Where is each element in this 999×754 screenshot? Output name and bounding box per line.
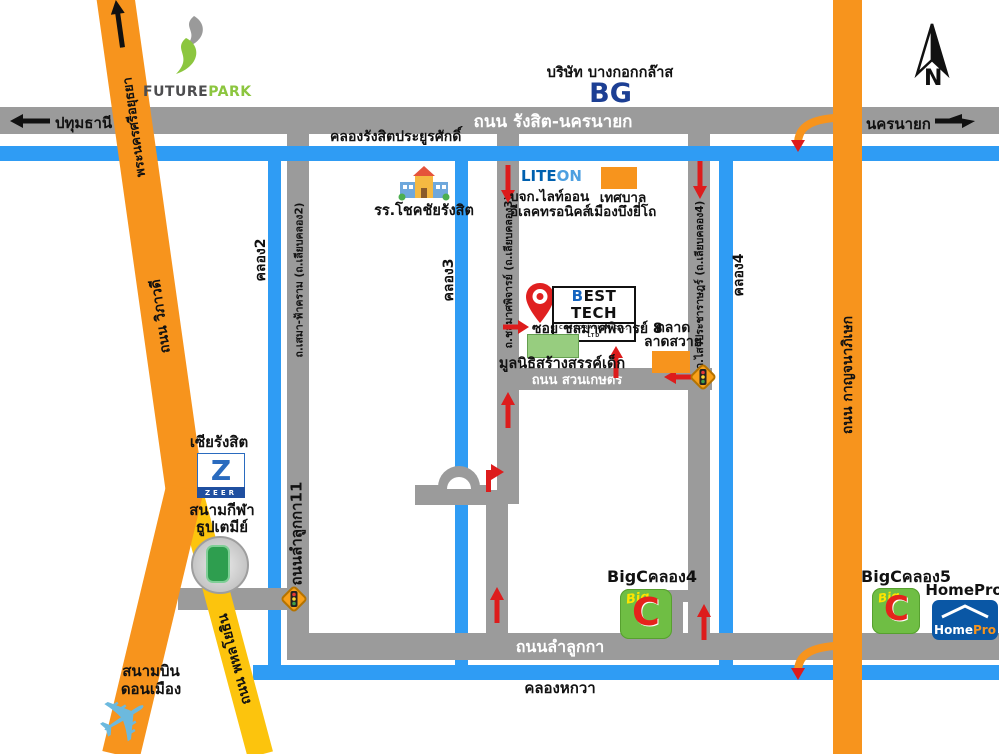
future-park-logo-icon <box>150 16 228 82</box>
label-lamlukka11: ถนนลำลูกกา11 <box>289 469 304 599</box>
label-canal-rangsit: คลองรังสิตประยูรศักดิ์ <box>330 126 461 148</box>
label-sema-fakram: ถ.เสมา-ฟ้าคราม (ถ.เลียบคลอง2) <box>293 193 305 368</box>
road-stadium-stub <box>178 588 292 610</box>
uturn-arrow-icon-top <box>789 112 835 152</box>
canal-hokwa <box>253 665 999 680</box>
homepro-label: HomePro <box>928 582 999 598</box>
liteon-line2: อีเลคทรอนิคส์ <box>510 200 591 222</box>
bigc-khlong5-logo: Big C <box>872 588 920 634</box>
highway-kanchanaphisek: ถนน กาญจนาภิเษก <box>833 0 862 754</box>
label-khlong4: คลอง4 <box>732 240 746 310</box>
label-khlong2: คลอง2 <box>254 225 268 295</box>
bg-logo: BG <box>588 79 633 107</box>
best-tech-location-map: ถนน รังสิต-นครนายก ปทุมธานี นครนายก ถนน … <box>0 0 999 754</box>
bigc-khlong4-label: BigCคลอง4 <box>600 568 704 586</box>
best-tech-pin-icon <box>525 283 555 323</box>
label-rangsit-nakhonnayok: ถนน รังสิต-นครนายก <box>443 110 663 132</box>
arrow-right-nakhonnayok-icon <box>935 114 975 128</box>
oneway-down-khlong4-icon <box>693 161 707 199</box>
zeer-name-label: เซียรังสิต <box>188 433 250 451</box>
label-vibhavadi: ถนน วิภาวดี <box>145 261 175 372</box>
label-dest-pathumthani: ปทุมธานี <box>55 111 112 135</box>
stadium-field-icon <box>206 545 230 583</box>
zeer-logo-bar: ZEER <box>197 487 245 498</box>
future-part: FUTURE <box>143 84 208 100</box>
best-tech-b: B <box>572 287 584 305</box>
label-lamlukka: ถนนลำลูกกา <box>460 636 660 658</box>
homepro-home-text: Home <box>934 623 973 637</box>
future-park-label: FUTUREPARK <box>143 84 252 100</box>
canal-khlong3 <box>455 146 468 665</box>
bigc-khlong4-logo: Big C <box>620 589 672 639</box>
foundation-label: มูลนิธิสร้างสรรค์เด็ก <box>498 354 626 372</box>
market-building-marker <box>652 351 690 373</box>
municipality-line2: เมืองบึงยี่โถ <box>583 203 663 218</box>
bigc4-c-letter: C <box>632 593 660 631</box>
canal-khlong4 <box>719 146 733 665</box>
traffic-light-suankaset-icon <box>688 362 718 392</box>
liteon-lite: LITE <box>521 167 557 185</box>
zeer-z-letter: Z <box>211 457 231 485</box>
zeer-logo: Z <box>197 453 245 489</box>
oneway-up-khlong4-bottom-icon <box>697 604 711 640</box>
park-part: PARK <box>208 84 251 100</box>
label-canal-hokwa: คลองหกวา <box>500 680 620 696</box>
north-direction-arrow-icon <box>109 0 130 48</box>
homepro-roof-icon <box>932 602 998 620</box>
homepro-logo: HomePro <box>932 600 998 640</box>
oneway-up-below-suankaset-icon <box>501 392 515 428</box>
label-phahonyothin: ถนน พหลโยธิน <box>211 595 258 724</box>
turn-right-bridge-icon <box>478 462 506 494</box>
arrow-left-pathumthani-icon <box>10 114 50 128</box>
label-dest-ayutthaya: พระนครศรีอยุธยา <box>116 52 152 203</box>
homepro-pro-text: Pro <box>973 623 996 637</box>
liteon-logo: LITEON <box>521 167 582 185</box>
school-building-icon <box>398 164 450 202</box>
label-dest-nakhonnayok: นครนายก <box>866 112 931 136</box>
oneway-up-khlong3-bottom-icon <box>490 587 504 623</box>
bigc5-c-letter: C <box>884 592 909 626</box>
traffic-light-stadium-icon <box>279 584 309 614</box>
compass-north-label: N <box>924 66 942 91</box>
school-label: รร.โชคชัยรังสิต <box>384 201 464 219</box>
uturn-arrow-icon-bottom <box>789 640 835 680</box>
label-sawai-pracharat: ถ.ไสวประชาราษฎร์ (ถ.เลียบคลอง4) <box>693 180 705 390</box>
stadium-line2: ธูปเตมีย์ <box>190 518 254 535</box>
label-khlong3: คลอง3 <box>442 245 456 315</box>
market-line2: ลาดสวาย <box>640 334 706 349</box>
label-kanchanaphisek: ถนน กาญจนาภิเษก <box>840 290 856 460</box>
liteon-on: ON <box>557 167 582 185</box>
